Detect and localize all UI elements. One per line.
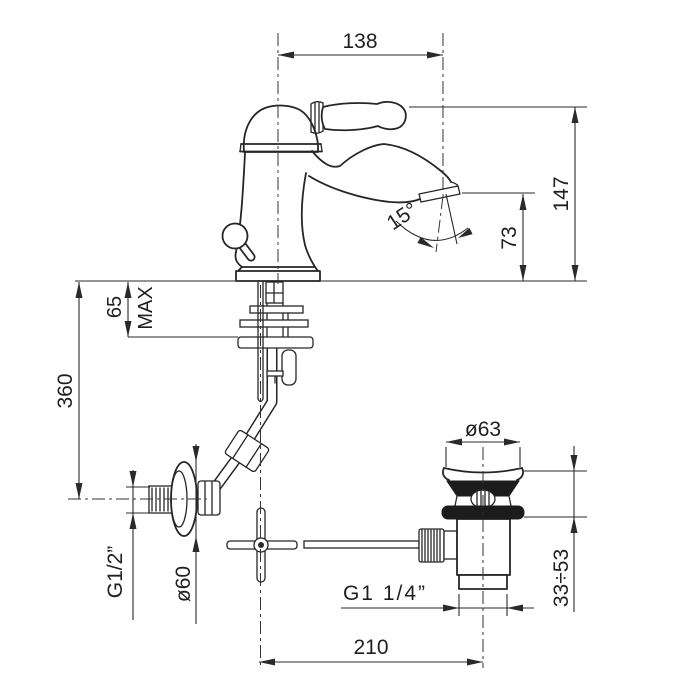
technical-drawing-canvas: 138 147 73 15° 65 MAX 360	[0, 0, 700, 700]
lift-linkage	[227, 508, 419, 582]
horizontal-link-rod	[304, 541, 419, 548]
dim-360: 360	[54, 282, 83, 499]
dim-g114-label: G1 1/4”	[343, 582, 427, 605]
dim-138: 138	[278, 30, 443, 59]
mounting-flange	[238, 337, 313, 348]
dome-cap	[244, 106, 318, 152]
dim-360-label: 360	[54, 373, 77, 408]
faucet-dimension-drawing: 138 147 73 15° 65 MAX 360	[0, 0, 700, 700]
spout-bottom	[309, 176, 420, 202]
washer-lower	[240, 320, 308, 327]
hose-connector	[282, 350, 296, 385]
dim-max-label: MAX	[135, 286, 157, 329]
dim-d60-label: ø60	[172, 566, 195, 602]
handle-lever	[311, 102, 406, 134]
union-nut	[198, 481, 220, 515]
dim-d63-label: ø63	[465, 418, 501, 441]
dim-33-53-label: 33÷53	[550, 549, 573, 607]
dim-73: 73	[498, 194, 527, 281]
rod-guide	[267, 371, 283, 376]
dim-65-max: 65 MAX	[104, 282, 157, 337]
connector-stub	[444, 531, 457, 559]
dim-angle-label: 15°	[383, 198, 422, 235]
dim-147-label: 147	[550, 176, 573, 211]
dim-147: 147	[550, 107, 579, 281]
dim-g12: G1/2”	[104, 470, 150, 620]
dim-138-label: 138	[342, 30, 377, 53]
dim-210: 210	[259, 636, 483, 666]
dim-73-label: 73	[498, 226, 521, 249]
body-right-edge	[302, 173, 315, 267]
dim-g12-label: G1/2”	[104, 546, 127, 599]
aerator	[419, 182, 460, 202]
dim-65-label: 65	[104, 296, 126, 318]
dim-210-label: 210	[353, 636, 388, 659]
faucet	[223, 102, 461, 281]
dim-33-53: 33÷53	[524, 446, 587, 612]
spout-top	[312, 144, 451, 182]
drain-assembly	[419, 468, 524, 589]
